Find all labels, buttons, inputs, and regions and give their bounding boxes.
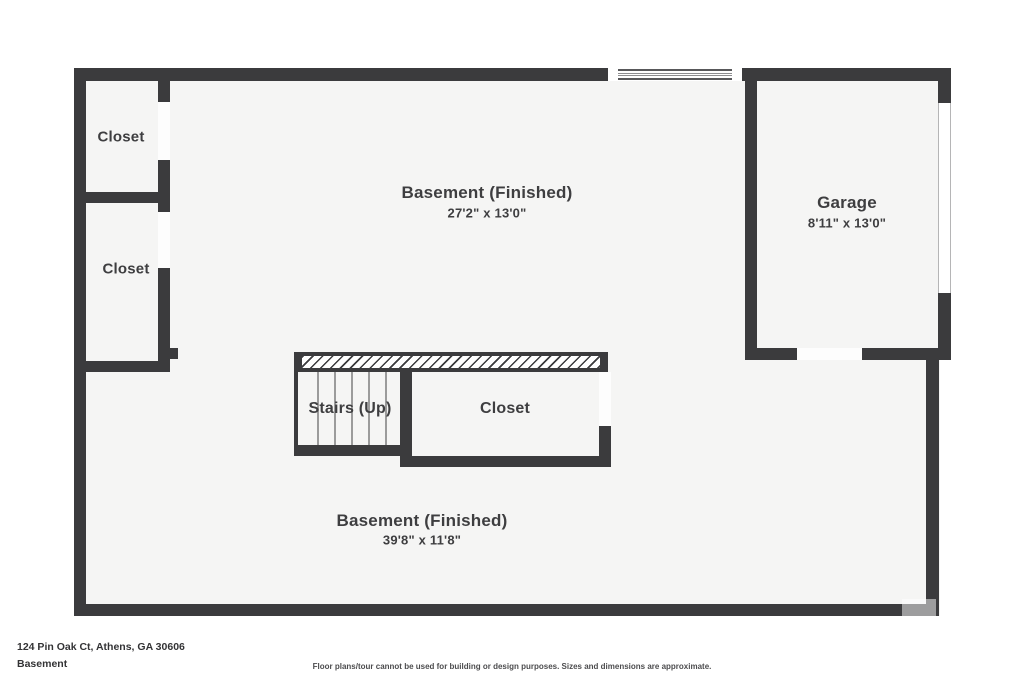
center-closet-door-opening xyxy=(599,372,611,426)
wall-closet2-bottom xyxy=(74,361,170,372)
disclaimer-text: Floor plans/tour cannot be used for buil… xyxy=(313,662,712,671)
wall-stub xyxy=(167,348,178,359)
wall-center-closet-right xyxy=(599,426,611,467)
wall-center-closet-left xyxy=(400,372,412,467)
floor-plan-page: Basement (Finished) 27'2" x 13'0" Garage… xyxy=(0,0,1024,682)
railing-end-cap-right xyxy=(600,352,608,372)
wall-left xyxy=(74,68,86,616)
garage-door-opening xyxy=(797,348,862,360)
wall-between-closets xyxy=(74,192,170,203)
room-label-closet-center: Closet xyxy=(480,400,530,418)
wall-bottom xyxy=(74,604,939,616)
room-label-basement-upper: Basement (Finished) xyxy=(402,183,573,203)
closet2-door-opening xyxy=(158,212,170,268)
wall-top xyxy=(74,68,951,81)
floor-name: Basement xyxy=(17,658,67,670)
watermark-artifact xyxy=(902,599,936,618)
wall-garage-left xyxy=(745,68,757,360)
wall-center-closet-bottom xyxy=(400,456,611,467)
garage-floor-area xyxy=(745,68,951,360)
wall-stairs-bottom xyxy=(294,445,406,456)
room-dims-basement-lower: 39'8" x 11'8" xyxy=(383,533,461,548)
room-label-garage: Garage xyxy=(817,193,877,213)
wall-right-lower xyxy=(926,348,939,616)
room-label-stairs: Stairs (Up) xyxy=(308,400,391,418)
hatch-pattern xyxy=(302,356,600,368)
property-address: 124 Pin Oak Ct, Athens, GA 30606 xyxy=(17,641,185,653)
room-label-closet-left: Closet xyxy=(102,261,149,278)
top-wall-window xyxy=(608,68,742,81)
stair-railing-halfwall xyxy=(294,352,608,372)
room-dims-basement-upper: 27'2" x 13'0" xyxy=(448,206,527,221)
closet1-door-opening xyxy=(158,102,170,160)
window-glass-line xyxy=(618,75,732,76)
window-glass-line xyxy=(618,73,732,74)
room-label-closet-top: Closet xyxy=(97,129,144,146)
railing-end-cap-left xyxy=(294,352,302,372)
wall-stairs-left xyxy=(294,372,298,448)
garage-right-window xyxy=(938,103,951,293)
room-dims-garage: 8'11" x 13'0" xyxy=(808,216,886,231)
room-label-basement-lower: Basement (Finished) xyxy=(337,511,508,531)
